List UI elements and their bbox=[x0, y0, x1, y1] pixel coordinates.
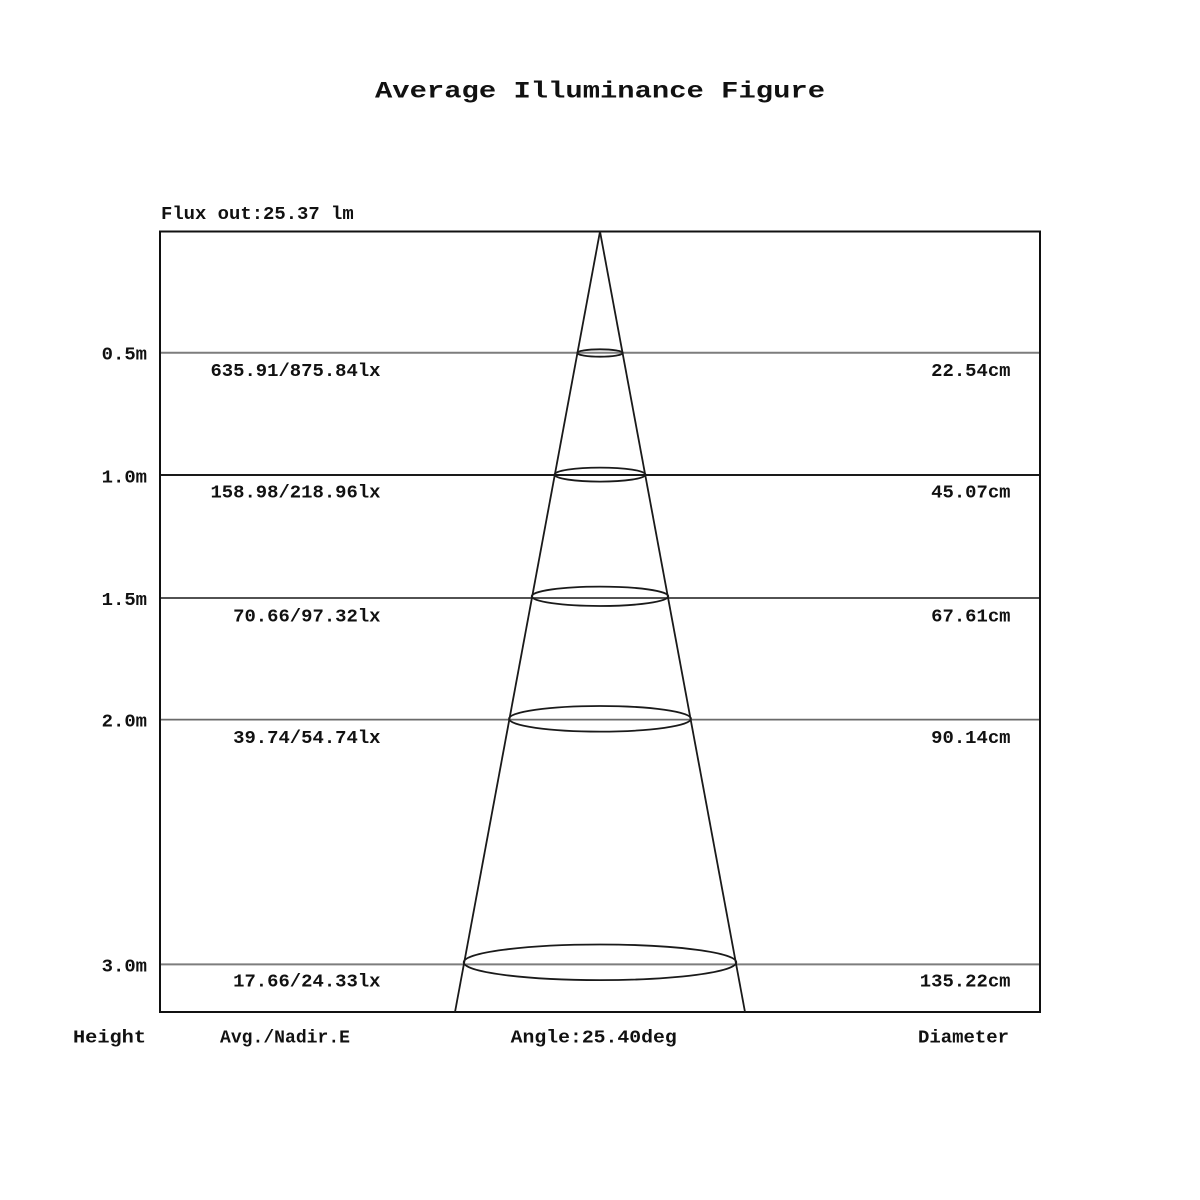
svg-text:Flux out:25.37 lm: Flux out:25.37 lm bbox=[161, 203, 354, 225]
svg-text:158.98/218.96lx: 158.98/218.96lx bbox=[210, 482, 380, 504]
svg-text:70.66/97.32lx: 70.66/97.32lx bbox=[233, 606, 380, 628]
svg-text:Avg./Nadir.E: Avg./Nadir.E bbox=[220, 1026, 350, 1048]
svg-text:635.91/875.84lx: 635.91/875.84lx bbox=[210, 360, 380, 382]
svg-text:90.14cm: 90.14cm bbox=[931, 727, 1010, 749]
svg-text:Height: Height bbox=[73, 1026, 146, 1048]
svg-text:2.0m: 2.0m bbox=[102, 710, 147, 732]
svg-text:Diameter: Diameter bbox=[918, 1026, 1009, 1048]
svg-text:1.0m: 1.0m bbox=[102, 467, 147, 489]
svg-text:39.74/54.74lx: 39.74/54.74lx bbox=[233, 727, 380, 749]
svg-text:17.66/24.33lx: 17.66/24.33lx bbox=[233, 971, 380, 993]
svg-text:22.54cm: 22.54cm bbox=[931, 360, 1010, 382]
svg-text:3.0m: 3.0m bbox=[102, 955, 147, 977]
svg-text:Angle:25.40deg: Angle:25.40deg bbox=[511, 1026, 677, 1048]
svg-text:135.22cm: 135.22cm bbox=[920, 971, 1011, 993]
svg-text:45.07cm: 45.07cm bbox=[931, 482, 1010, 504]
svg-text:0.5m: 0.5m bbox=[102, 344, 147, 366]
svg-text:1.5m: 1.5m bbox=[102, 589, 147, 611]
svg-text:Average Illuminance Figure: Average Illuminance Figure bbox=[375, 79, 825, 105]
svg-text:67.61cm: 67.61cm bbox=[931, 606, 1010, 628]
